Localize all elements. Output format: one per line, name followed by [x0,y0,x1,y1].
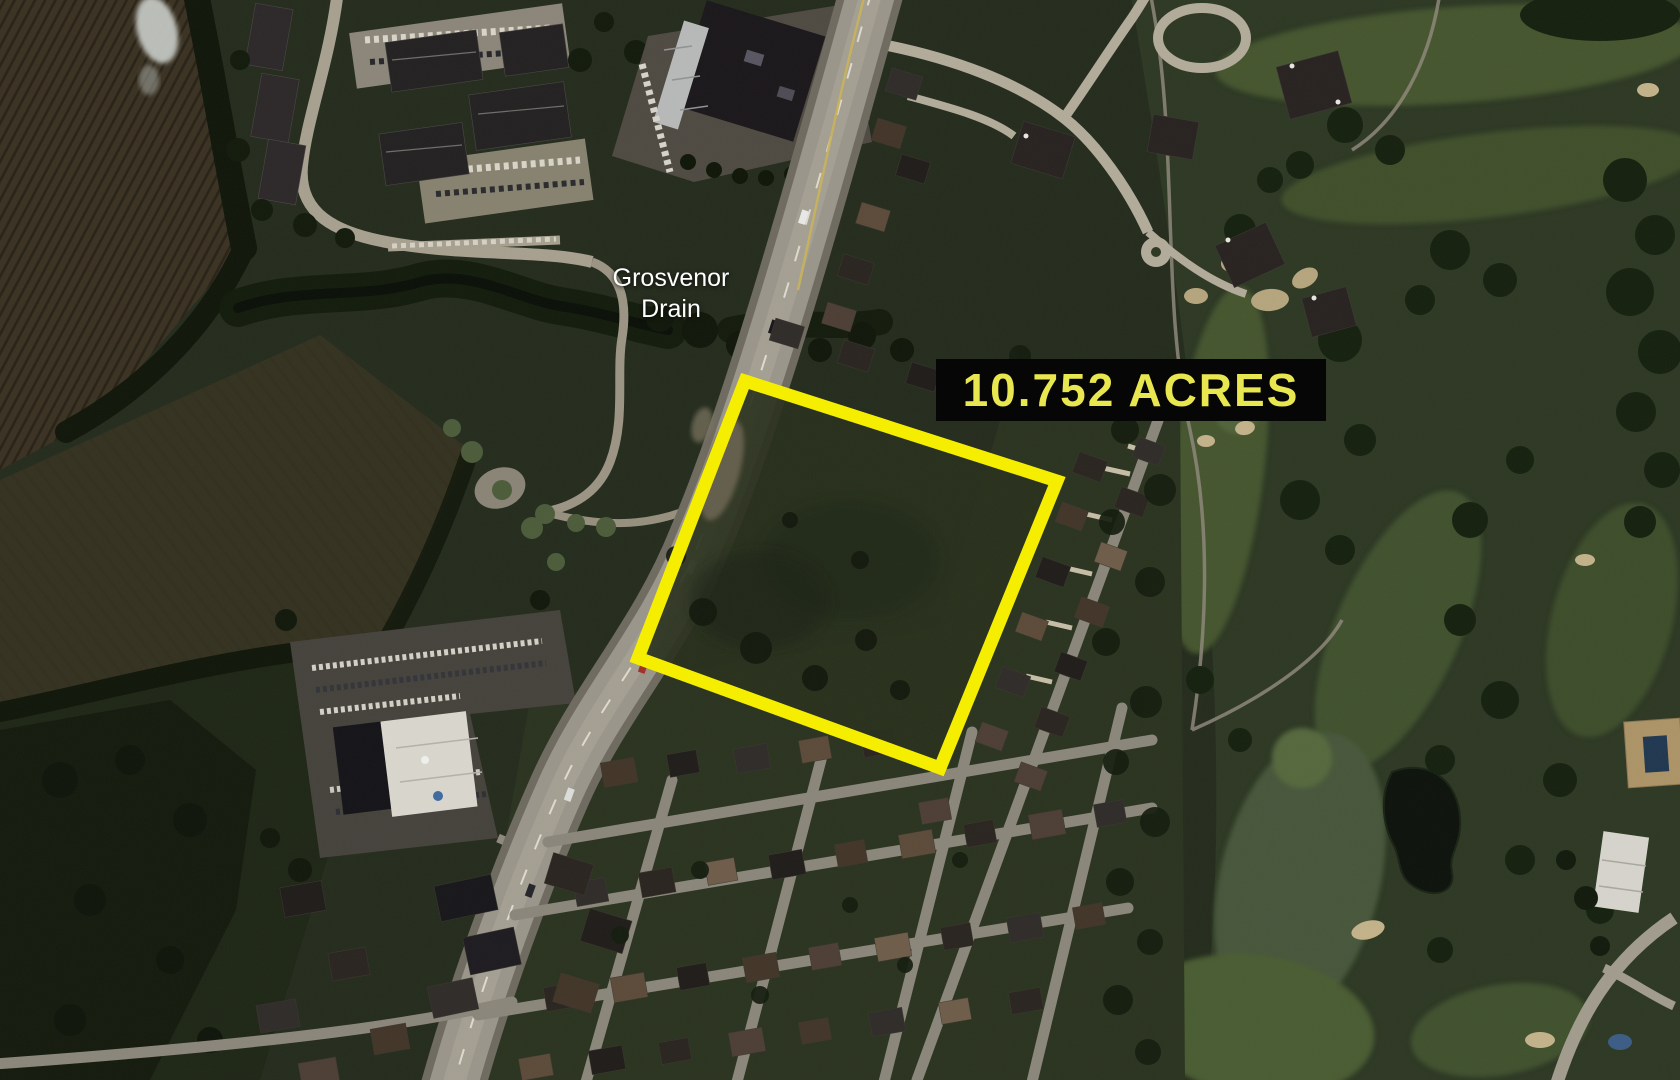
area-label-text: 10.752 ACRES [963,364,1300,416]
place-label-line1: Grosvenor [613,264,730,292]
satellite-map-image: 10.752 ACRES Grosvenor Drain [0,0,1680,1080]
place-label-line2: Drain [641,295,701,323]
area-label: 10.752 ACRES [936,359,1326,421]
map-canvas: 10.752 ACRES Grosvenor Drain [0,0,1680,1080]
grain-overlay [0,0,1680,1080]
